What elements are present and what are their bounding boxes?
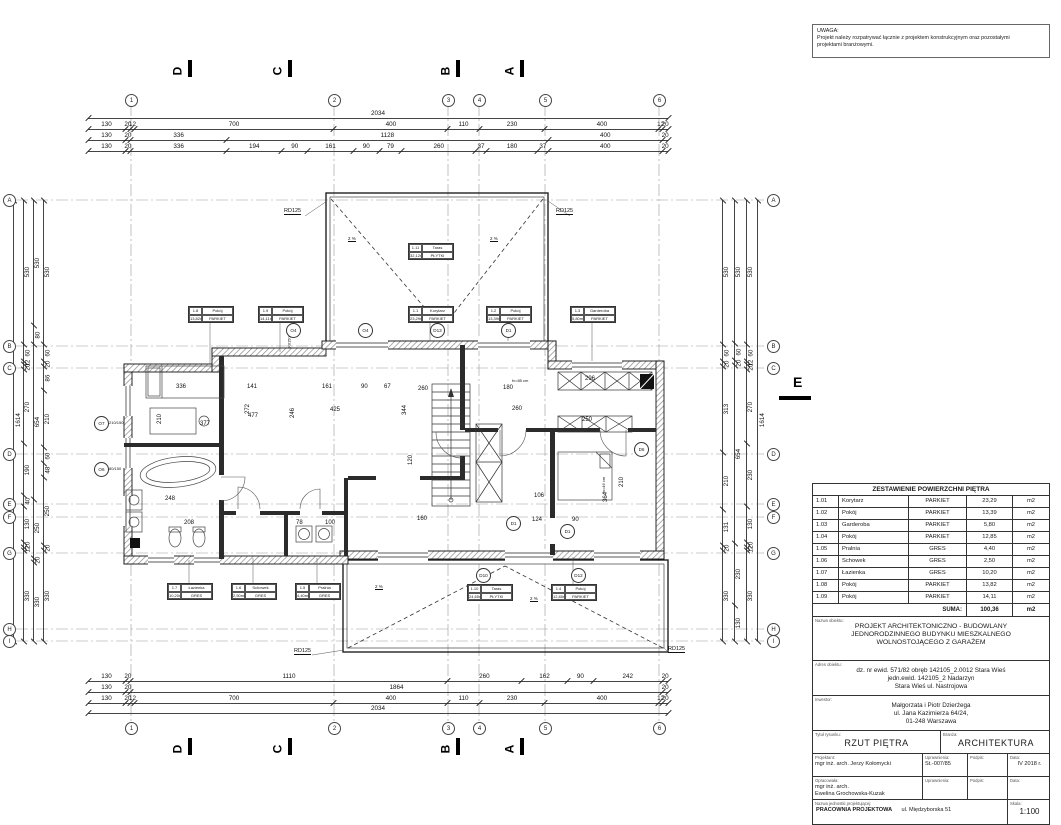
dim-segment: 1614: [758, 200, 767, 641]
cell-name: Korytarz: [839, 496, 909, 507]
axis-col-3-top: 3: [442, 94, 455, 107]
object-name-section: Nazwa obiektu: PROJEKT ARCHITEKTONICZNO …: [813, 617, 1049, 661]
dim-value: 161: [325, 144, 336, 150]
room-no: 1.6: [232, 584, 245, 592]
dim-value: 110: [459, 122, 469, 128]
inline-dim: 272: [245, 404, 251, 414]
room-tag-1-1: 1.1Korytarz 23,29m²PARKIET: [408, 306, 454, 323]
dim-segment: 330: [747, 551, 756, 641]
scale-label: Skala:: [1010, 801, 1022, 806]
designer-cell: Projektant: mgr inż. arch. Jerzy Kołomyc…: [813, 754, 923, 776]
investor-label: Inwestor:: [815, 697, 832, 702]
dim-value: 313: [724, 404, 730, 415]
table-row: 1.03GarderobaPARKIET5,80m2: [813, 520, 1049, 532]
investor-line1: Małgorzata i Piotr Dzierżega: [813, 702, 1049, 710]
design-office-address: ul. Międzyborska 51: [902, 807, 952, 813]
dim-value: 20: [662, 674, 669, 680]
section-marker-e-right: E: [793, 374, 802, 390]
design-office-name-text: PRACOWNIA PROJEKTOWA: [816, 807, 892, 813]
dim-segment: 90: [568, 670, 594, 681]
dim-value: 270: [25, 402, 31, 413]
signature-cell: Podpis:: [968, 754, 1008, 776]
investor-line2: ul. Jana Kazimierza 64/24,: [813, 710, 1049, 718]
dim-bottom-overall: 2034: [88, 702, 668, 714]
window-height-note: fv=85 cm: [512, 379, 528, 383]
investor-section: Inwestor: Małgorzata i Piotr Dzierżega u…: [813, 696, 1049, 731]
dim-segment: 90: [282, 140, 308, 151]
dim-segment: 400: [548, 140, 662, 151]
date-label: Data:: [1010, 755, 1020, 762]
room-tag-1-11: 1.11Taras 32,12m²PŁYTKI: [408, 243, 454, 260]
dim-segment: 270: [24, 370, 33, 444]
dim-value: 330: [724, 591, 730, 602]
room-finish: GRES: [245, 592, 276, 600]
dim-segment: 130: [24, 507, 33, 543]
dim-value: 1614: [759, 413, 765, 427]
scale-value: 1:100: [1008, 807, 1051, 816]
axis-col-1-top: 1: [125, 94, 138, 107]
dim-value: 336: [173, 144, 184, 150]
dim-value: 60: [748, 350, 754, 357]
dim-value: 20: [662, 685, 669, 691]
dim-value: 60: [45, 452, 51, 459]
room-name: Taras: [481, 585, 512, 593]
room-finish: PARKIET: [422, 315, 453, 323]
dim-segment: 230: [479, 118, 545, 129]
drawing-title-cell: Tytuł rysunku: RZUT PIĘTRA: [813, 731, 941, 753]
dim-segment: 60: [44, 448, 53, 464]
sheet: { "note": { "title": "UWAGA:", "line1": …: [0, 0, 1061, 800]
room-name: Taras: [422, 244, 453, 252]
area-table-header: ZESTAWIENIE POWIERZCHNI PIĘTRA: [813, 484, 1049, 496]
section-marker-d-bottom: D: [170, 745, 184, 754]
axis-row-c-right: C: [767, 362, 780, 375]
room-area: 10,20m²: [168, 592, 181, 600]
cell-finish: GRES: [909, 568, 967, 579]
dim-value: 130: [101, 674, 112, 680]
inline-dim: 377: [200, 421, 210, 427]
room-finish: PARKIET: [565, 593, 596, 601]
cell-no: 1.09: [813, 592, 839, 603]
dim-value: 60: [724, 350, 730, 357]
dim-segment: 270: [747, 370, 756, 444]
branch-value: ARCHITEKTURA: [941, 738, 1051, 748]
cell-no: 1.02: [813, 508, 839, 519]
dim-segment: 330: [723, 551, 732, 641]
room-finish: PARKIET: [202, 315, 233, 323]
section-bar: [188, 738, 192, 755]
dim-value: 130: [25, 519, 31, 530]
dim-value: 400: [597, 122, 608, 128]
dim-value: 48: [45, 467, 51, 474]
author-cell: Opracowała: mgr inż. arch. Ewelina Groch…: [813, 777, 923, 799]
inline-dim: 141: [247, 384, 257, 390]
axis-col-2-top: 2: [328, 94, 341, 107]
room-no: 1.5: [296, 584, 309, 592]
room-area: 23,29m²: [409, 315, 422, 323]
dim-value: 400: [600, 133, 611, 139]
room-area: 32,12m²: [409, 252, 422, 260]
cell-no: 1.08: [813, 580, 839, 591]
section-bar: [520, 60, 524, 77]
dim-value: 79: [387, 144, 394, 150]
suma-label: SUMA:: [813, 604, 967, 616]
cell-area: 2,50: [967, 556, 1013, 567]
cell-name: Schowek: [839, 556, 909, 567]
date-cell-2: Data:: [1008, 777, 1051, 799]
section-marker-a-top: A: [502, 67, 516, 76]
dim-value: 230: [748, 470, 754, 481]
dim-value: 530: [736, 267, 742, 278]
room-area: 4,40m²: [296, 592, 309, 600]
dim-value: 90: [363, 144, 370, 150]
dim-value: 270: [748, 402, 754, 413]
inline-dim: 248: [165, 496, 175, 502]
dim-value: 230: [736, 569, 742, 580]
inline-dim: 124: [532, 517, 542, 523]
dim-segment: 700: [134, 118, 334, 129]
cell-name: Pokój: [839, 592, 909, 603]
cell-no: 1.07: [813, 568, 839, 579]
dim-segment: 48: [44, 464, 53, 477]
dim-segment: 1128: [227, 129, 549, 140]
dim-segment: 2034: [88, 107, 668, 118]
window-height-note: fv=46 cm: [602, 477, 606, 493]
room-no: 1.1: [409, 307, 422, 315]
dim-segment: 130: [88, 118, 125, 129]
dim-value: 37: [478, 144, 485, 150]
inline-dim: 208: [184, 520, 194, 526]
dim-segment: 400: [548, 129, 662, 140]
cell-name: Pralnia: [839, 544, 909, 555]
axis-col-4-top: 4: [473, 94, 486, 107]
dim-value: 80: [35, 331, 41, 338]
room-finish: PARKIET: [500, 315, 531, 323]
opening-tag-d12: D12: [571, 568, 586, 583]
cell-finish: GRES: [909, 556, 967, 567]
opening-tag-o6: O6: [94, 462, 109, 477]
room-name: Pralnia: [309, 584, 340, 592]
dim-value: 90: [291, 144, 298, 150]
dim-segment: 210: [44, 390, 53, 447]
dim-value: 210: [45, 414, 51, 425]
dim-value: 530: [748, 267, 754, 278]
dim-value: 20: [662, 122, 669, 128]
room-area: 14,11m²: [259, 315, 272, 323]
dim-right-mid: 5306020654230130: [734, 200, 744, 641]
dim-segment: 654: [735, 366, 744, 544]
date-cell: Data: IV 2018 r.: [1008, 754, 1051, 776]
cell-unit: m2: [1013, 544, 1049, 555]
inline-dim: 250: [582, 417, 592, 423]
dim-segment: 330: [34, 563, 43, 641]
dim-segment: 60: [44, 345, 53, 361]
dim-segment: 60: [735, 344, 744, 360]
investor-line3: 01-248 Warszawa: [813, 718, 1049, 726]
object-name-line3: WOLNOSTOJĄCEGO Z GARAŻEM: [813, 639, 1049, 647]
room-area: 24,65m²: [468, 593, 481, 601]
axis-row-e-right: E: [767, 498, 780, 511]
cell-unit: m2: [1013, 508, 1049, 519]
license-value: St.-007/85: [925, 761, 965, 768]
dim-value: 530: [35, 257, 41, 268]
dim-segment: 37: [476, 140, 487, 151]
dim-segment: 336: [131, 129, 227, 140]
date-label: Data:: [1010, 778, 1020, 785]
object-name-label: Nazwa obiektu:: [815, 618, 844, 623]
dim-value: 194: [249, 144, 260, 150]
slope-label: 2 %: [348, 236, 356, 242]
dim-value: 1614: [15, 413, 21, 427]
dim-value: 90: [577, 674, 584, 680]
section-bar: [456, 60, 460, 77]
designer-row: Projektant: mgr inż. arch. Jerzy Kołomyc…: [813, 754, 1049, 777]
axis-col-1-bottom: 1: [125, 722, 138, 735]
inline-dim: 106: [534, 493, 544, 499]
cell-name: Pokój: [839, 532, 909, 543]
dim-segment: 162: [521, 670, 567, 681]
section-marker-b-bottom: B: [438, 745, 452, 754]
dim-segment: 2034: [88, 702, 668, 713]
design-office-name: PRACOWNIA PROJEKTOWA ul. Międzyborska 51: [816, 807, 1005, 813]
note-line1: Projekt należy rozpatrywać łącznie z pro…: [817, 35, 1045, 42]
dim-segment: 130: [88, 129, 125, 140]
inline-dim: 78: [296, 520, 303, 526]
object-name-line1: PROJEKT ARCHITEKTONICZNO - BUDOWLANY: [813, 623, 1049, 631]
dim-value: 530: [724, 267, 730, 278]
room-finish: PARKIET: [584, 315, 615, 323]
cell-finish: PARKIET: [909, 496, 967, 507]
section-bar: [288, 738, 292, 755]
dim-value: 242: [623, 674, 634, 680]
cell-no: 1.05: [813, 544, 839, 555]
opening-size: 80/150: [109, 466, 121, 471]
dim-value: 20: [662, 144, 669, 150]
room-no: 1.2: [487, 307, 500, 315]
dim-value: 330: [35, 597, 41, 608]
axis-row-b-left: B: [3, 340, 16, 353]
dim-left-inner: 530602086210604825020330: [43, 200, 53, 641]
axis-row-d-right: D: [767, 448, 780, 461]
section-marker-c-bottom: C: [270, 745, 284, 754]
suma-value: 100,36: [967, 604, 1013, 616]
designer-name: mgr inż. arch. Jerzy Kołomycki: [815, 761, 920, 768]
dim-segment: 60: [723, 345, 732, 361]
inline-dim: 260: [418, 386, 428, 392]
cell-no: 1.01: [813, 496, 839, 507]
axis-col-3-bottom: 3: [442, 722, 455, 735]
room-finish: PŁYTKI: [481, 593, 512, 601]
opening-tag-d13: D13: [430, 323, 445, 338]
dim-value: 60: [736, 349, 742, 356]
room-tag-1-4: 1.4Pokój 12,85m²PARKIET: [551, 584, 597, 601]
dim-segment: 20: [662, 681, 668, 692]
design-office-cell: Nazwa jednostki projektującej: PRACOWNIA…: [813, 800, 1008, 824]
dim-segment: 130: [88, 670, 125, 681]
dim-value: 180: [507, 144, 518, 150]
room-area: 12,85m²: [552, 593, 565, 601]
cell-name: Pokój: [839, 508, 909, 519]
opening-tag-o7: O7: [94, 416, 109, 431]
dim-value: 330: [45, 591, 51, 602]
design-office-row: Nazwa jednostki projektującej: PRACOWNIA…: [813, 800, 1049, 824]
drawing-title-label: Tytuł rysunku:: [815, 732, 841, 737]
design-office-label: Nazwa jednostki projektującej:: [815, 801, 871, 806]
dim-value: 330: [25, 591, 31, 602]
address-line3: Stara Wieś ul. Nastrojowa: [813, 683, 1049, 691]
dim-value: 130: [101, 133, 112, 139]
dim-right-outer: 5306012202702301302012330: [746, 200, 756, 641]
cell-no: 1.03: [813, 520, 839, 531]
room-tag-1-9: 1.9Pokój 14,11m²PARKIET: [258, 306, 304, 323]
room-tag-1-2: 1.2Pokój 13,39m²PARKIET: [486, 306, 532, 323]
room-no: 1.4: [552, 585, 565, 593]
license-label: Uprawnienia:: [925, 778, 949, 785]
opening-size: 80/150: [287, 336, 292, 348]
axis-row-e-left: E: [3, 498, 16, 511]
dim-value: 130: [101, 144, 112, 150]
dim-segment: 20: [662, 129, 668, 140]
author-line2: Ewelina Grochowska-Kuzak: [815, 791, 920, 798]
dim-value: 1128: [381, 133, 395, 139]
section-marker-b-top: B: [438, 67, 452, 76]
inline-dim: 425: [330, 407, 340, 413]
dim-segment: 130: [88, 140, 125, 151]
cell-finish: PARKIET: [909, 508, 967, 519]
section-bar: [456, 738, 460, 755]
section-bar: [520, 738, 524, 755]
opening-tag-d1: D1: [506, 516, 521, 531]
axis-row-f-right: F: [767, 511, 780, 524]
slope-label: 2 %: [490, 236, 498, 242]
dim-value: 260: [433, 144, 444, 150]
note-line2: projektami branżowymi.: [817, 42, 1045, 49]
opening-tag-o4: O4: [358, 323, 373, 338]
cell-name: Pokój: [839, 580, 909, 591]
dim-segment: 1614: [14, 200, 23, 641]
opening-tag-d10: D10: [476, 568, 491, 583]
signature-cell-2: Podpis:: [968, 777, 1008, 799]
room-finish: PARKIET: [272, 315, 303, 323]
roof-drain-label: RD125: [556, 208, 573, 215]
dim-segment: 260: [447, 670, 521, 681]
dim-value: 1110: [282, 674, 295, 680]
table-row: 1.09PokójPARKIET14,11m2: [813, 592, 1049, 604]
room-tag-1-3: 1.3Garderoba 5,80m²PARKIET: [570, 306, 616, 323]
section-marker-c-top: C: [270, 67, 284, 76]
inline-dim: 364: [603, 492, 609, 502]
cell-finish: PARKIET: [909, 580, 967, 591]
address-section: Adres obiektu: dz. nr ewid. 571/82 obręb…: [813, 661, 1049, 696]
dim-segment: 130: [747, 507, 756, 543]
axis-row-a-right: A: [767, 194, 780, 207]
date-value: IV 2018 r.: [1010, 761, 1049, 768]
dim-segment: 86: [44, 367, 53, 391]
axis-row-c-left: C: [3, 362, 16, 375]
room-finish: GRES: [309, 592, 340, 600]
dim-value: 130: [736, 618, 742, 629]
author-label: Opracowała:: [815, 778, 839, 785]
dim-value: 60: [45, 350, 51, 357]
table-row: 1.05PralniaGRES4,40m2: [813, 544, 1049, 556]
opening-tag-d1: D1: [560, 524, 575, 539]
table-row: 1.06SchowekGRES2,50m2: [813, 556, 1049, 568]
room-tag-1-8: 1.8Pokój 13,82m²PARKIET: [188, 306, 234, 323]
dim-right-overall: 1614: [757, 200, 767, 641]
dim-value: 2034: [371, 706, 385, 712]
dim-value: 530: [25, 267, 31, 278]
inline-dim: 344: [402, 405, 408, 415]
dim-segment: 336: [131, 140, 227, 151]
dim-value: 130: [748, 519, 754, 530]
room-no: 1.3: [571, 307, 584, 315]
slope-label: 2 %: [375, 584, 383, 590]
room-name: Pokój: [565, 585, 596, 593]
room-no: 1.10: [468, 585, 481, 593]
dim-segment: 79: [379, 140, 402, 151]
dim-value: 700: [229, 122, 240, 128]
room-area: 13,39m²: [487, 315, 500, 323]
room-tag-1-5: 1.5Pralnia 4,40m²GRES: [295, 583, 341, 600]
dim-segment: 210: [723, 452, 732, 509]
lower-terrace-outline: [343, 560, 668, 652]
dim-segment: 130: [735, 606, 744, 641]
dim-segment: 20: [662, 118, 668, 129]
room-no: 1.9: [259, 307, 272, 315]
stairs-arrow: [448, 388, 454, 397]
cell-unit: m2: [1013, 520, 1049, 531]
axis-row-i-left: I: [3, 635, 16, 648]
cell-area: 4,40: [967, 544, 1013, 555]
table-row: 1.04PokójPARKIET12,85m2: [813, 532, 1049, 544]
designer-label: Projektant:: [815, 755, 835, 762]
cell-area: 13,82: [967, 580, 1013, 591]
inline-dim: 90: [361, 384, 368, 390]
dim-segment: 230: [735, 543, 744, 605]
axis-row-g-left: G: [3, 547, 16, 560]
inline-dim: 90: [572, 517, 579, 523]
inline-dim: 296: [585, 376, 595, 382]
cell-name: Garderoba: [839, 520, 909, 531]
dim-segment: 400: [334, 118, 448, 129]
dim-segment: 530: [723, 200, 732, 345]
dim-segment: 530: [44, 200, 53, 345]
inline-dim: 210: [619, 477, 625, 487]
roof-drain-label: RD125: [284, 208, 301, 215]
dim-value: 131: [724, 522, 730, 533]
address-line2: jedn.ewid. 142105_2 Nadarzyn: [813, 675, 1049, 683]
dim-value: 400: [386, 122, 397, 128]
dim-value: 60: [25, 350, 31, 357]
dim-value: 37: [539, 144, 546, 150]
dim-segment: 530: [747, 200, 756, 345]
cell-finish: PARKIET: [909, 532, 967, 543]
table-row: 1.07ŁazienkaGRES10,20m2: [813, 568, 1049, 580]
cell-name: Łazienka: [839, 568, 909, 579]
inline-dim: 336: [176, 384, 186, 390]
dim-segment: 250: [44, 477, 53, 545]
dim-segment: 180: [486, 140, 537, 151]
inline-dim: 246: [290, 408, 296, 418]
license-label: Uprawnienia:: [925, 755, 949, 762]
room-name: Schowek: [245, 584, 276, 592]
cell-finish: GRES: [909, 544, 967, 555]
dim-segment: 230: [747, 444, 756, 507]
cell-finish: PARKIET: [909, 520, 967, 531]
axis-row-d-left: D: [3, 448, 16, 461]
axis-row-b-right: B: [767, 340, 780, 353]
dim-segment: 130: [88, 681, 125, 692]
